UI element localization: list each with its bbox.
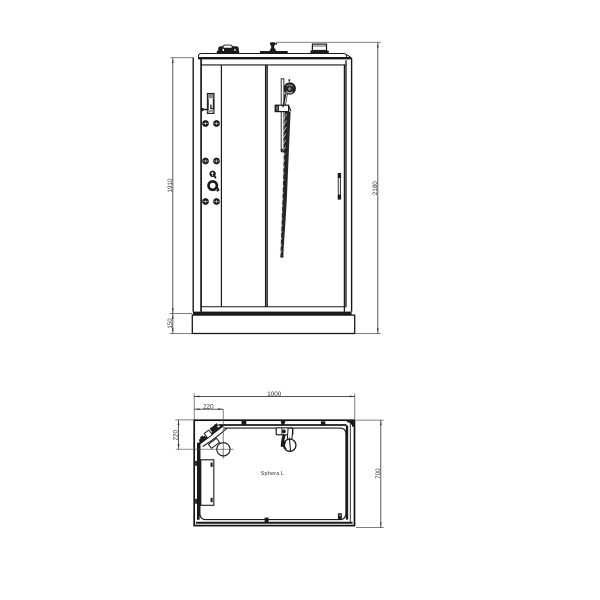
svg-text:2180: 2180 — [372, 181, 379, 196]
svg-text:150: 150 — [167, 318, 174, 329]
svg-text:700: 700 — [375, 468, 382, 479]
svg-text:Sphera: Sphera — [261, 471, 281, 477]
svg-text:220: 220 — [203, 404, 214, 411]
svg-text:1910: 1910 — [167, 178, 174, 193]
svg-text:L: L — [281, 471, 284, 477]
svg-text:1000: 1000 — [267, 391, 282, 398]
svg-text:220: 220 — [173, 430, 180, 441]
